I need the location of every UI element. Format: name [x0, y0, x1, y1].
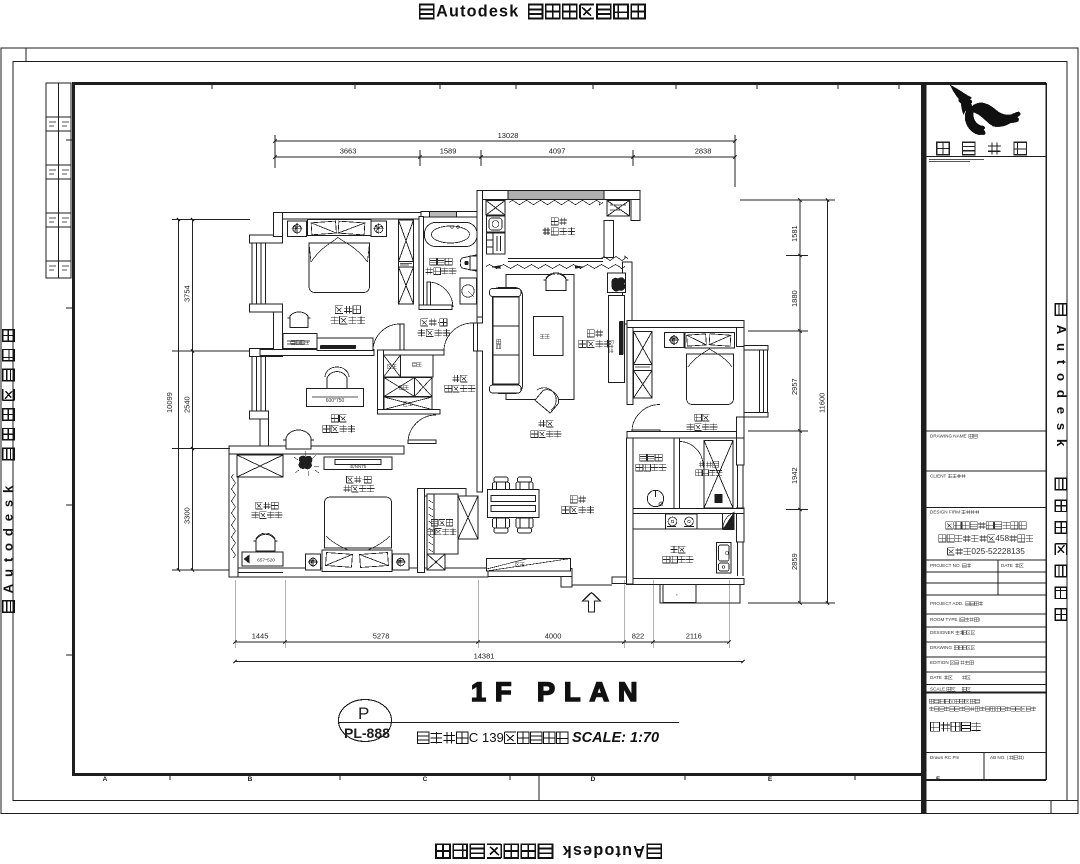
- svg-text:EDITION: EDITION: [930, 660, 949, 665]
- svg-text:3663: 3663: [340, 147, 357, 156]
- svg-text:11600: 11600: [818, 393, 827, 413]
- svg-text:C 139: C 139: [469, 730, 504, 745]
- svg-text:A: A: [103, 776, 108, 783]
- svg-text:2540: 2540: [183, 396, 192, 413]
- svg-text:3300: 3300: [183, 507, 192, 524]
- svg-text:*: *: [676, 593, 678, 598]
- svg-text:PROJECT ADD.: PROJECT ADD.: [930, 601, 963, 606]
- svg-text:1880: 1880: [790, 290, 799, 307]
- svg-text:1942: 1942: [790, 467, 799, 484]
- svg-text:DRAWING NAME: DRAWING NAME: [930, 434, 967, 439]
- svg-text:025-52228135: 025-52228135: [971, 546, 1025, 556]
- svg-text:10099: 10099: [165, 392, 174, 413]
- svg-text:DATE: DATE: [1001, 563, 1013, 568]
- svg-text:B: B: [248, 776, 253, 783]
- svg-text:Autodesk: Autodesk: [1054, 325, 1069, 455]
- svg-text:Autodesk: Autodesk: [562, 842, 645, 860]
- svg-text:PROJECT NO.: PROJECT NO.: [930, 563, 961, 568]
- svg-text:1589: 1589: [440, 147, 457, 156]
- svg-text:600*750: 600*750: [326, 398, 345, 404]
- svg-text:3754: 3754: [183, 285, 192, 302]
- svg-text:DATE: DATE: [930, 675, 942, 680]
- svg-text:F: F: [936, 776, 940, 783]
- svg-text:CLIENT: CLIENT: [930, 474, 947, 479]
- svg-text:D: D: [591, 776, 596, 783]
- svg-text:AB NO. (: AB NO. (: [990, 755, 1009, 760]
- svg-text:822: 822: [632, 632, 645, 641]
- svg-text:13028: 13028: [498, 131, 519, 140]
- svg-text:458: 458: [995, 533, 1009, 543]
- svg-text:ROOM TYPE (: ROOM TYPE (: [930, 617, 961, 622]
- svg-text:2116: 2116: [686, 632, 702, 641]
- svg-text:14381: 14381: [474, 652, 495, 661]
- svg-text:SCALE: SCALE: [930, 687, 945, 692]
- svg-text:1581: 1581: [790, 225, 799, 242]
- svg-text:4000: 4000: [545, 632, 562, 641]
- svg-text:657*520: 657*520: [257, 558, 275, 564]
- svg-text:4t/NN75: 4t/NN75: [350, 464, 367, 469]
- svg-text:Drawn RC Pm: Drawn RC Pm: [930, 755, 960, 760]
- svg-text:1445: 1445: [252, 632, 269, 641]
- svg-text:Autodesk: Autodesk: [436, 3, 519, 21]
- svg-text:4097: 4097: [549, 147, 566, 156]
- svg-text:1F PLAN: 1F PLAN: [471, 677, 647, 707]
- svg-text:C: C: [423, 776, 428, 783]
- svg-text:SCALE: 1:70: SCALE: 1:70: [572, 730, 659, 746]
- svg-text:2859: 2859: [790, 553, 799, 570]
- svg-text:DESIGN FIRM: DESIGN FIRM: [930, 510, 960, 515]
- svg-text:DESIGNER: DESIGNER: [930, 630, 955, 635]
- svg-text:5278: 5278: [373, 632, 390, 641]
- svg-text:E: E: [768, 776, 773, 783]
- svg-text:2957: 2957: [790, 378, 799, 395]
- svg-text:·: ·: [437, 317, 440, 327]
- svg-text:PL-888: PL-888: [344, 725, 390, 741]
- svg-text:P: P: [358, 704, 369, 723]
- svg-text:Autodesk: Autodesk: [1, 479, 16, 593]
- svg-text:DRAWING: DRAWING: [930, 645, 952, 650]
- svg-text:2838: 2838: [695, 147, 712, 156]
